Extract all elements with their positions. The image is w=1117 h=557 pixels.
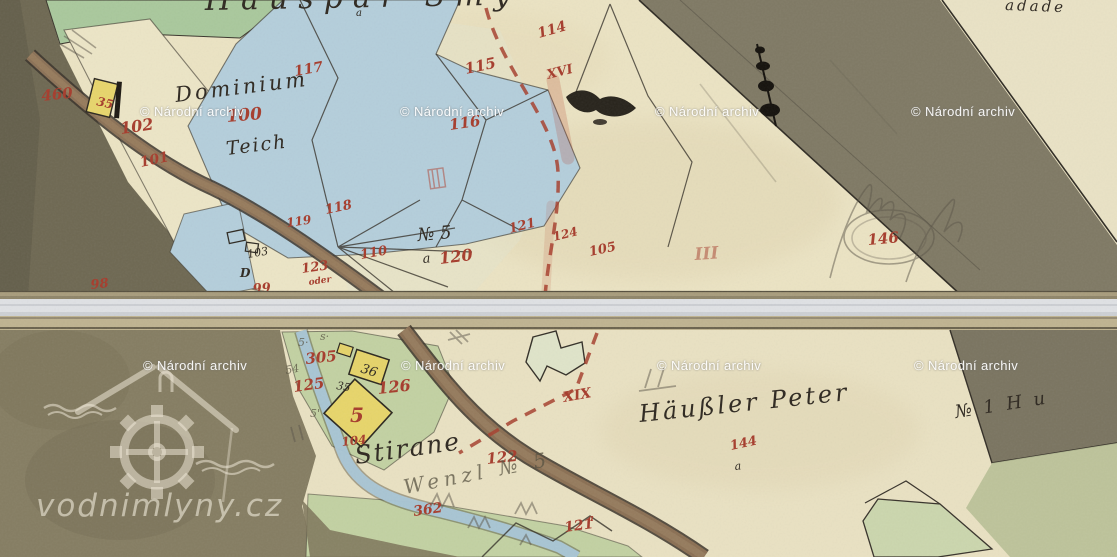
map-artwork: Häuspar Smÿ adade Dominium 100 Teich 117…	[0, 0, 1117, 557]
paper-grain-overlay	[0, 0, 1117, 557]
scanned-cadastral-map: Häuspar Smÿ adade Dominium 100 Teich 117…	[0, 0, 1117, 557]
mill-wheel-icon	[110, 405, 204, 499]
